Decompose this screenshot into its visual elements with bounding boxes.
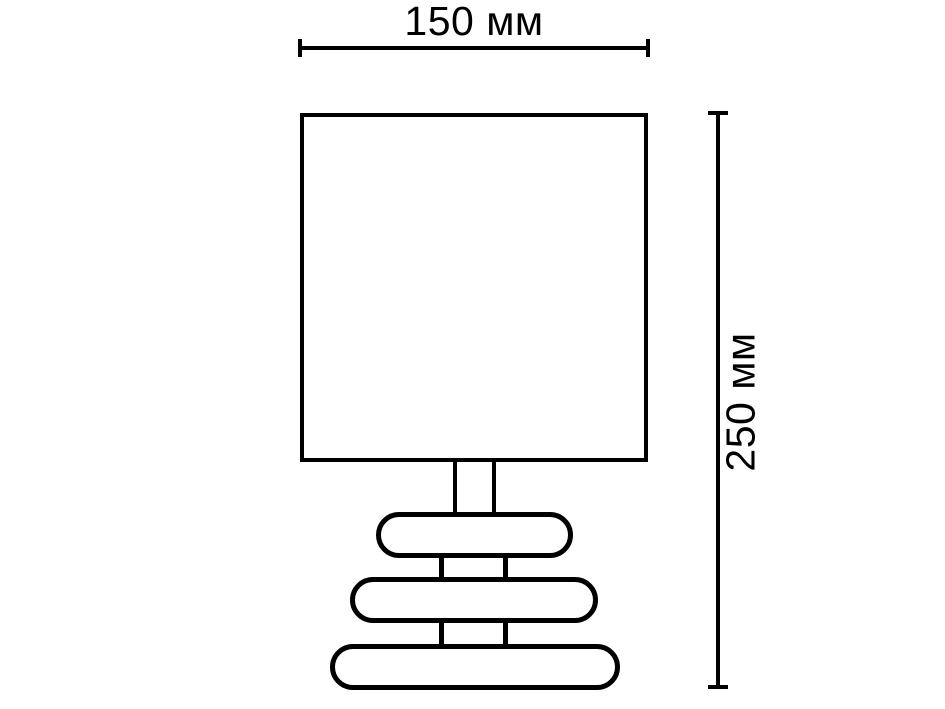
- width-dimension-line: [300, 46, 648, 50]
- width-dimension-label: 150 мм: [300, 0, 648, 44]
- height-dimension-label: 250 мм: [721, 332, 762, 471]
- height-dimension-tick-top: [708, 111, 728, 115]
- lamp-stem-left-line: [453, 460, 457, 516]
- base-pebble-middle: [350, 577, 598, 623]
- dimension-diagram: 150 мм 250 мм: [0, 0, 945, 709]
- base-pebble-top: [376, 512, 573, 558]
- lamp-stem-right-line: [492, 460, 496, 516]
- height-dimension-tick-bottom: [708, 685, 728, 689]
- base-pebble-bottom: [330, 644, 620, 690]
- lamp-shade-outline: [300, 113, 648, 462]
